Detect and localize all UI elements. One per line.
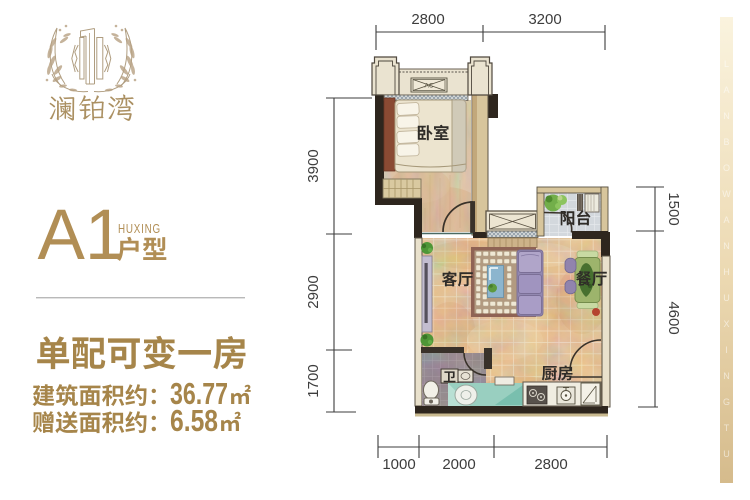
svg-text:U: U <box>723 293 730 303</box>
svg-text:1500: 1500 <box>665 192 682 225</box>
svg-text:6.58: 6.58 <box>170 404 218 438</box>
svg-text:A: A <box>723 215 729 225</box>
svg-text:X: X <box>723 319 729 329</box>
svg-text:A: A <box>723 85 729 95</box>
svg-text:2800: 2800 <box>534 456 567 473</box>
svg-text:N: N <box>723 371 730 381</box>
svg-text:W: W <box>722 189 731 199</box>
svg-text:AC: AC <box>424 83 433 90</box>
svg-text:HUXING: HUXING <box>118 222 161 236</box>
svg-text:N: N <box>723 111 730 121</box>
svg-text:3900: 3900 <box>305 149 322 182</box>
svg-text:2900: 2900 <box>305 275 322 308</box>
svg-text:1700: 1700 <box>305 364 322 397</box>
svg-text:H: H <box>723 267 730 277</box>
svg-text:B: B <box>723 137 729 147</box>
svg-text:4600: 4600 <box>665 301 682 334</box>
svg-text:A1: A1 <box>38 196 125 275</box>
svg-text:G: G <box>723 397 730 407</box>
svg-text:T: T <box>724 423 730 433</box>
svg-text:1000: 1000 <box>382 456 415 473</box>
svg-text:2800: 2800 <box>411 11 444 28</box>
svg-text:U: U <box>723 449 730 459</box>
svg-text:I: I <box>725 345 728 355</box>
svg-text:3200: 3200 <box>528 11 561 28</box>
svg-text:N: N <box>723 241 730 251</box>
svg-text:L: L <box>724 59 729 69</box>
svg-text:2000: 2000 <box>442 456 475 473</box>
svg-text:O: O <box>723 163 730 173</box>
